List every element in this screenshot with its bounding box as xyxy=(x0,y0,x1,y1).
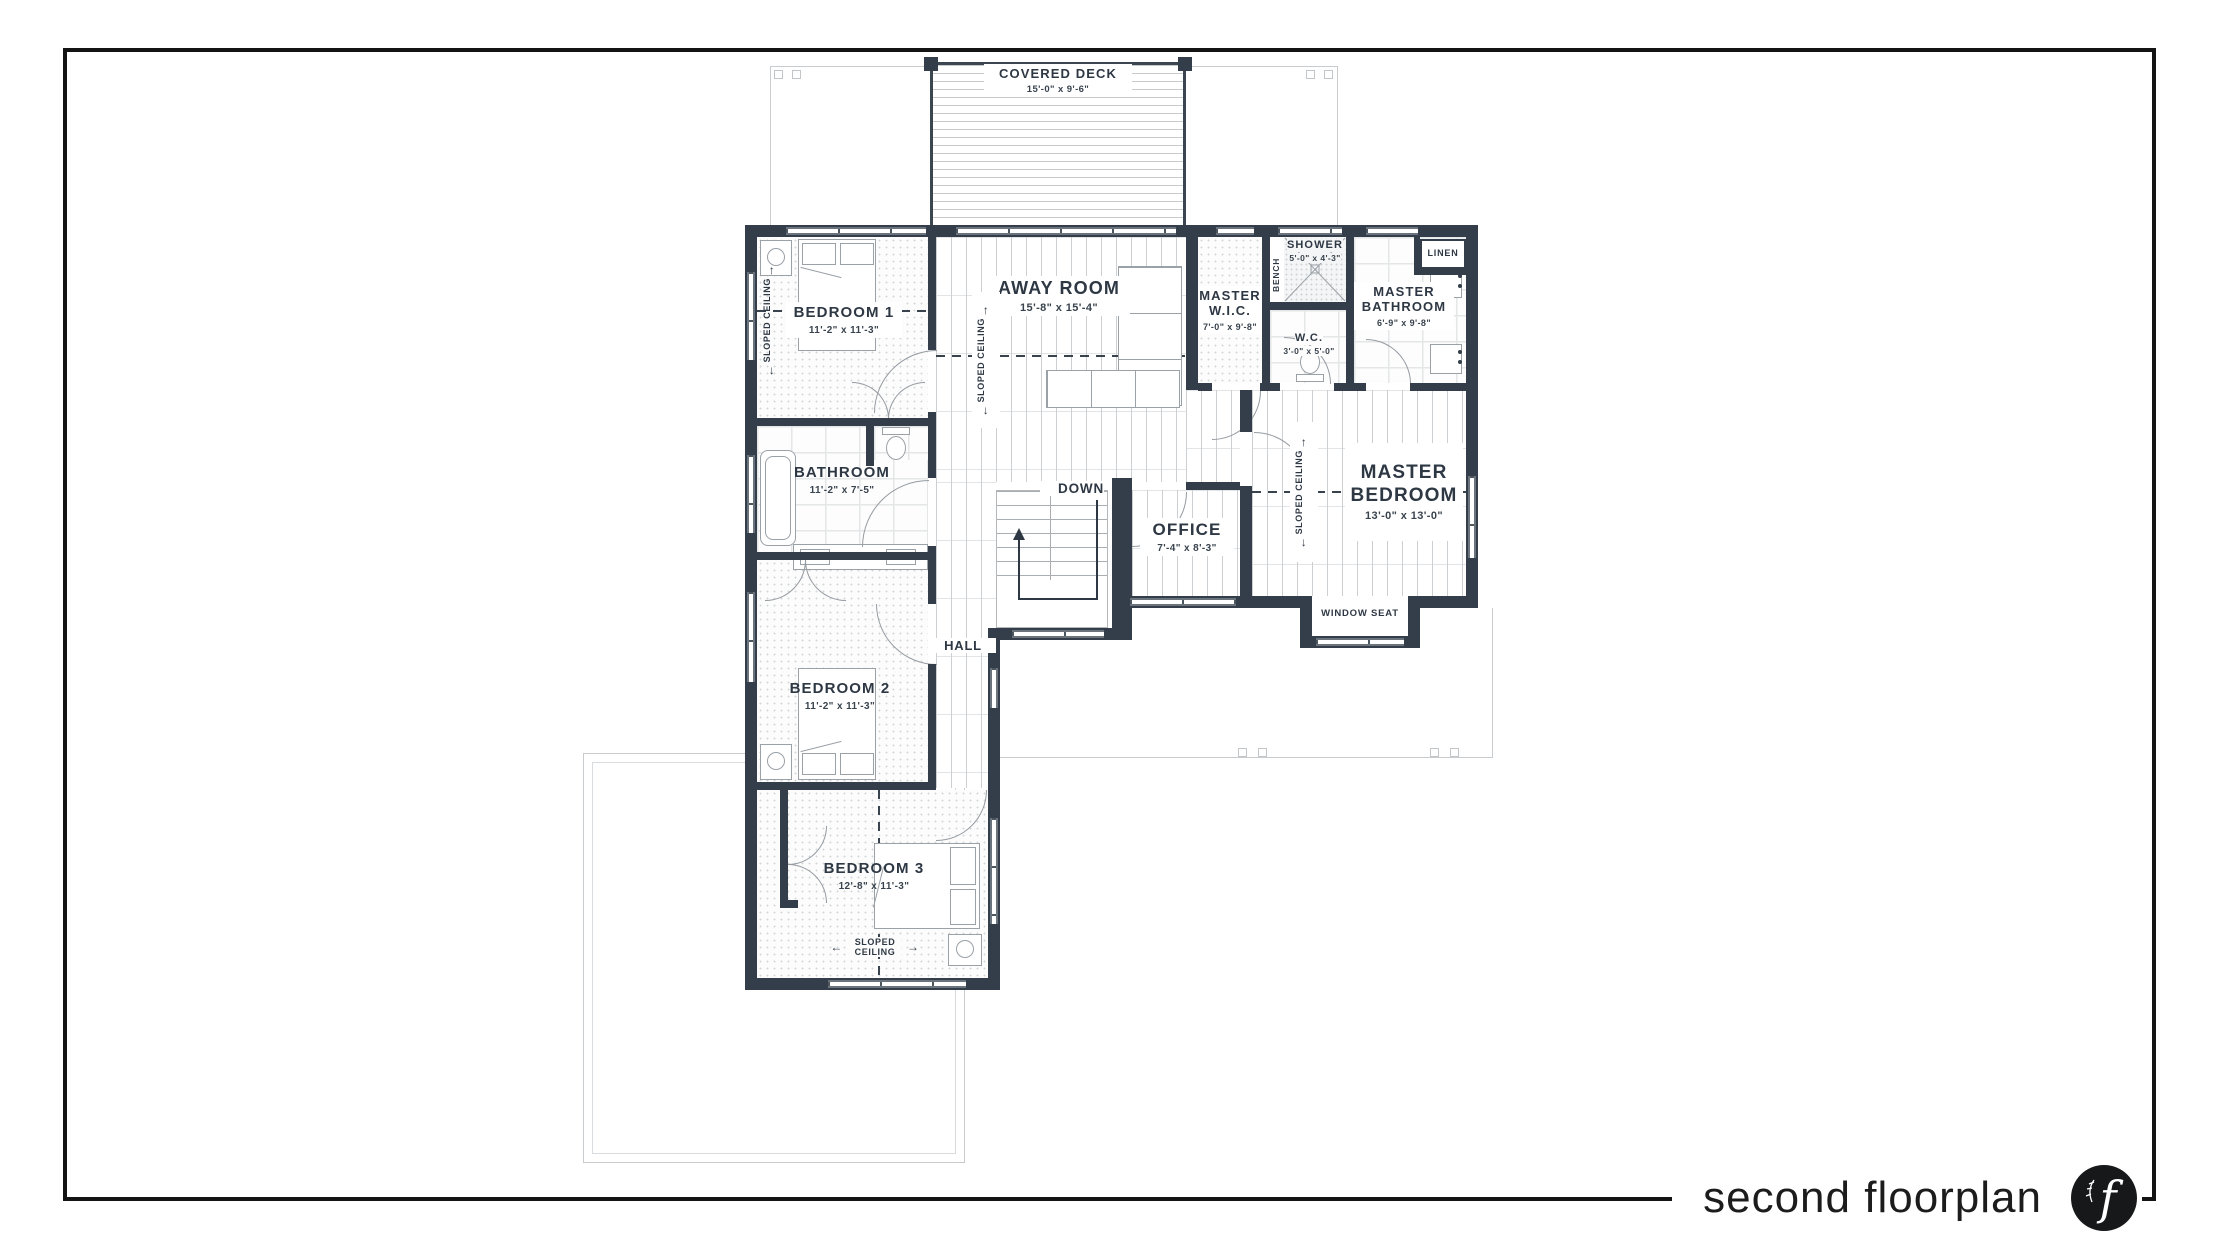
toilet-bowl xyxy=(886,436,906,460)
deck-post xyxy=(1450,748,1459,757)
window xyxy=(747,592,755,682)
deck-post xyxy=(774,70,783,79)
room-name: MASTER BATHROOM xyxy=(1359,284,1449,315)
window-seat-label: WINDOW SEAT xyxy=(1312,608,1408,619)
wc-wall-bottom-a xyxy=(1270,383,1280,391)
window xyxy=(1366,227,1418,235)
linen-label: LINEN xyxy=(1422,248,1464,258)
wc-label: W.C. 3'-0" x 5'-0" xyxy=(1276,332,1342,356)
stair-divider xyxy=(1050,490,1051,580)
brand-logo: f xyxy=(2070,1164,2138,1232)
arrow-right-icon: → xyxy=(907,941,920,953)
wc-wall-bottom-b xyxy=(1334,383,1354,391)
corridor-wall-a xyxy=(1112,482,1132,490)
roof-outline-left xyxy=(770,66,771,226)
stair-path-horizontal xyxy=(1020,598,1098,600)
closet-wall-bedroom3 xyxy=(780,790,788,900)
pillow xyxy=(950,889,976,925)
bedroom3-label: BEDROOM 3 12'-8" x 11'-3" xyxy=(812,858,936,894)
stair-wall-right xyxy=(1112,478,1132,640)
room-name: W.C. xyxy=(1295,332,1323,345)
stair-arrow-shaft xyxy=(1018,540,1020,600)
linen-wall-bottom xyxy=(1414,269,1466,275)
wall-away-master xyxy=(1186,225,1198,390)
bench-label: BENCH xyxy=(1271,248,1281,292)
sloped-ceiling-text: SLOPED CEILING xyxy=(1294,450,1314,534)
deck-post xyxy=(1306,70,1315,79)
deck-post xyxy=(1324,70,1333,79)
roof-outline-right xyxy=(1337,66,1338,226)
window xyxy=(747,272,755,360)
sheet-title: second floorplan xyxy=(1703,1173,2042,1223)
deck-post xyxy=(1258,748,1267,757)
arrow-up-icon: ↑ xyxy=(769,264,776,276)
room-dims: 11'-2" x 11'-3" xyxy=(805,701,875,712)
wall-bath-bed2 xyxy=(745,552,936,560)
window xyxy=(1216,227,1254,235)
deck-corner-post xyxy=(924,57,938,71)
stair-path-vertical xyxy=(1096,500,1098,600)
window xyxy=(990,818,998,924)
room-name: AWAY ROOM xyxy=(998,278,1120,299)
room-name: MASTER BEDROOM xyxy=(1350,462,1458,507)
roof-outline-top-left xyxy=(770,66,931,67)
window xyxy=(1468,476,1476,558)
exterior-wall-bottom-mb-right xyxy=(1408,596,1478,608)
window xyxy=(786,227,926,235)
window xyxy=(1012,630,1104,638)
arrow-left-icon: ← xyxy=(830,941,843,953)
floorplan-sheet: COVERED DECK 15'-0" x 9'-6" xyxy=(0,0,2219,1250)
faucet-dot xyxy=(1458,360,1462,364)
room-name: OFFICE xyxy=(1153,520,1222,540)
down-label: DOWN xyxy=(1040,481,1104,496)
room-dims: 5'-0" x 4'-3" xyxy=(1289,253,1340,263)
toilet-tank xyxy=(882,427,910,435)
room-dims: 3'-0" x 5'-0" xyxy=(1283,346,1334,356)
mbath-wall-bottom-b xyxy=(1410,383,1466,391)
bedroom2-label: BEDROOM 2 11'-2" x 11'-3" xyxy=(782,678,898,714)
wall-bed2-bed3 xyxy=(745,782,936,790)
frame-top xyxy=(63,48,2156,52)
linen-wall-left xyxy=(1414,237,1420,273)
room-dims: 11'-2" x 7'-5" xyxy=(810,485,875,496)
wall-shower-wc xyxy=(1262,302,1354,310)
lamp xyxy=(956,940,974,958)
pillow xyxy=(802,753,836,775)
sloped-ceiling-text: SLOPED CEILING xyxy=(976,318,996,402)
wall-bed1-bath xyxy=(745,418,936,426)
room-name: BATHROOM xyxy=(794,464,890,482)
wic-wall-bottom-b xyxy=(1260,383,1270,391)
window xyxy=(956,227,1176,235)
vanity-sink xyxy=(1430,344,1462,374)
sloped-ceiling-bedroom3: ← SLOPED CEILING → xyxy=(800,930,950,964)
window xyxy=(1316,638,1404,646)
room-name: COVERED DECK xyxy=(999,66,1117,81)
room-dims: 13'-0" x 13'-0" xyxy=(1365,510,1443,522)
sloped-ceiling-text: SLOPED CEILING xyxy=(762,278,782,362)
room-name: BEDROOM 1 xyxy=(794,304,895,322)
title-block: second floorplan f xyxy=(1672,1156,2142,1240)
stair-landing xyxy=(997,580,1107,627)
closet-wall-cap xyxy=(780,900,798,908)
pillow xyxy=(840,753,874,775)
window xyxy=(828,980,966,988)
room-name: BEDROOM 3 xyxy=(824,860,925,878)
corridor-wall-b xyxy=(1186,482,1240,490)
wall-office-mb-a xyxy=(1240,390,1252,432)
room-dims: 6'-9" x 9'-8" xyxy=(1377,318,1431,328)
deck-post xyxy=(1430,748,1439,757)
deck-post xyxy=(1238,748,1247,757)
lamp xyxy=(767,752,785,770)
sofa-section-horizontal xyxy=(1046,370,1180,408)
deck-post xyxy=(792,70,801,79)
pillow xyxy=(950,847,976,885)
sloped-ceiling-master-bedroom: ↑ SLOPED CEILING ↓ xyxy=(1290,422,1318,562)
office-label: OFFICE 7'-4" x 8'-3" xyxy=(1140,518,1234,556)
wall-wic-bench xyxy=(1262,237,1270,383)
stair-arrow-head xyxy=(1013,528,1025,540)
master-bedroom-label: MASTER BEDROOM 13'-0" x 13'-0" xyxy=(1345,443,1463,541)
toilet-nook-wall xyxy=(866,426,874,466)
covered-deck-label: COVERED DECK 15'-0" x 9'-6" xyxy=(984,64,1132,97)
wall-wc-mbath xyxy=(1346,237,1354,383)
sloped-ceiling-text: SLOPED CEILING xyxy=(849,937,901,957)
shower-label: SHOWER 5'-0" x 4'-3" xyxy=(1284,239,1346,263)
room-name: MASTER W.I.C. xyxy=(1198,288,1262,319)
arrow-down-icon: ↓ xyxy=(769,364,776,376)
arrow-down-icon: ↓ xyxy=(1301,536,1308,548)
room-dims: 11'-2" x 11'-3" xyxy=(809,325,879,336)
pillow xyxy=(802,243,836,265)
room-dims: 15'-8" x 15'-4" xyxy=(1020,302,1098,314)
mbath-wall-bottom-a xyxy=(1354,383,1366,391)
faucet-dot xyxy=(1458,284,1462,288)
wall-office-mb-b xyxy=(1240,486,1252,596)
window xyxy=(1130,598,1236,606)
room-dims: 7'-4" x 8'-3" xyxy=(1157,543,1216,554)
deck-outline-bottom xyxy=(965,757,1492,758)
room-dims: 12'-8" x 11'-3" xyxy=(839,881,910,892)
master-wic-label: MASTER W.I.C. 7'-0" x 9'-8" xyxy=(1198,286,1262,334)
bathroom-label: BATHROOM 11'-2" x 7'-5" xyxy=(780,462,904,498)
pillow xyxy=(840,243,874,265)
hall-floor xyxy=(936,482,996,788)
hall-label: HALL xyxy=(930,638,996,653)
bedroom1-label: BEDROOM 1 11'-2" x 11'-3" xyxy=(786,302,902,338)
room-dims: 7'-0" x 9'-8" xyxy=(1203,322,1257,332)
faucet-dot xyxy=(1458,350,1462,354)
room-name: BEDROOM 2 xyxy=(790,680,891,698)
wall-bed1-hall-a xyxy=(928,237,936,350)
frame-left xyxy=(63,48,67,1201)
wic-wall-bottom-a xyxy=(1198,383,1212,391)
room-name: SHOWER xyxy=(1287,239,1343,252)
window xyxy=(747,455,755,533)
away-room-label: AWAY ROOM 15'-8" x 15'-4" xyxy=(988,276,1130,316)
master-bathroom-label: MASTER BATHROOM 6'-9" x 9'-8" xyxy=(1354,282,1454,330)
window xyxy=(990,668,998,708)
sloped-ceiling-away-room: ↑ SLOPED CEILING ↓ xyxy=(972,292,1000,428)
room-dims: 15'-0" x 9'-6" xyxy=(1027,84,1089,95)
frame-right xyxy=(2152,48,2156,1201)
arrow-up-icon: ↑ xyxy=(983,304,990,316)
sloped-ceiling-bedroom1: ↑ SLOPED CEILING ↓ xyxy=(758,252,786,388)
deck-outline-right xyxy=(1492,608,1493,758)
roof-outline-top-right xyxy=(1186,66,1338,67)
window xyxy=(1278,227,1342,235)
deck-corner-post xyxy=(1178,57,1192,71)
arrow-down-icon: ↓ xyxy=(983,404,990,416)
wall-bed2-hall xyxy=(928,664,936,788)
arrow-up-icon: ↑ xyxy=(1301,436,1308,448)
